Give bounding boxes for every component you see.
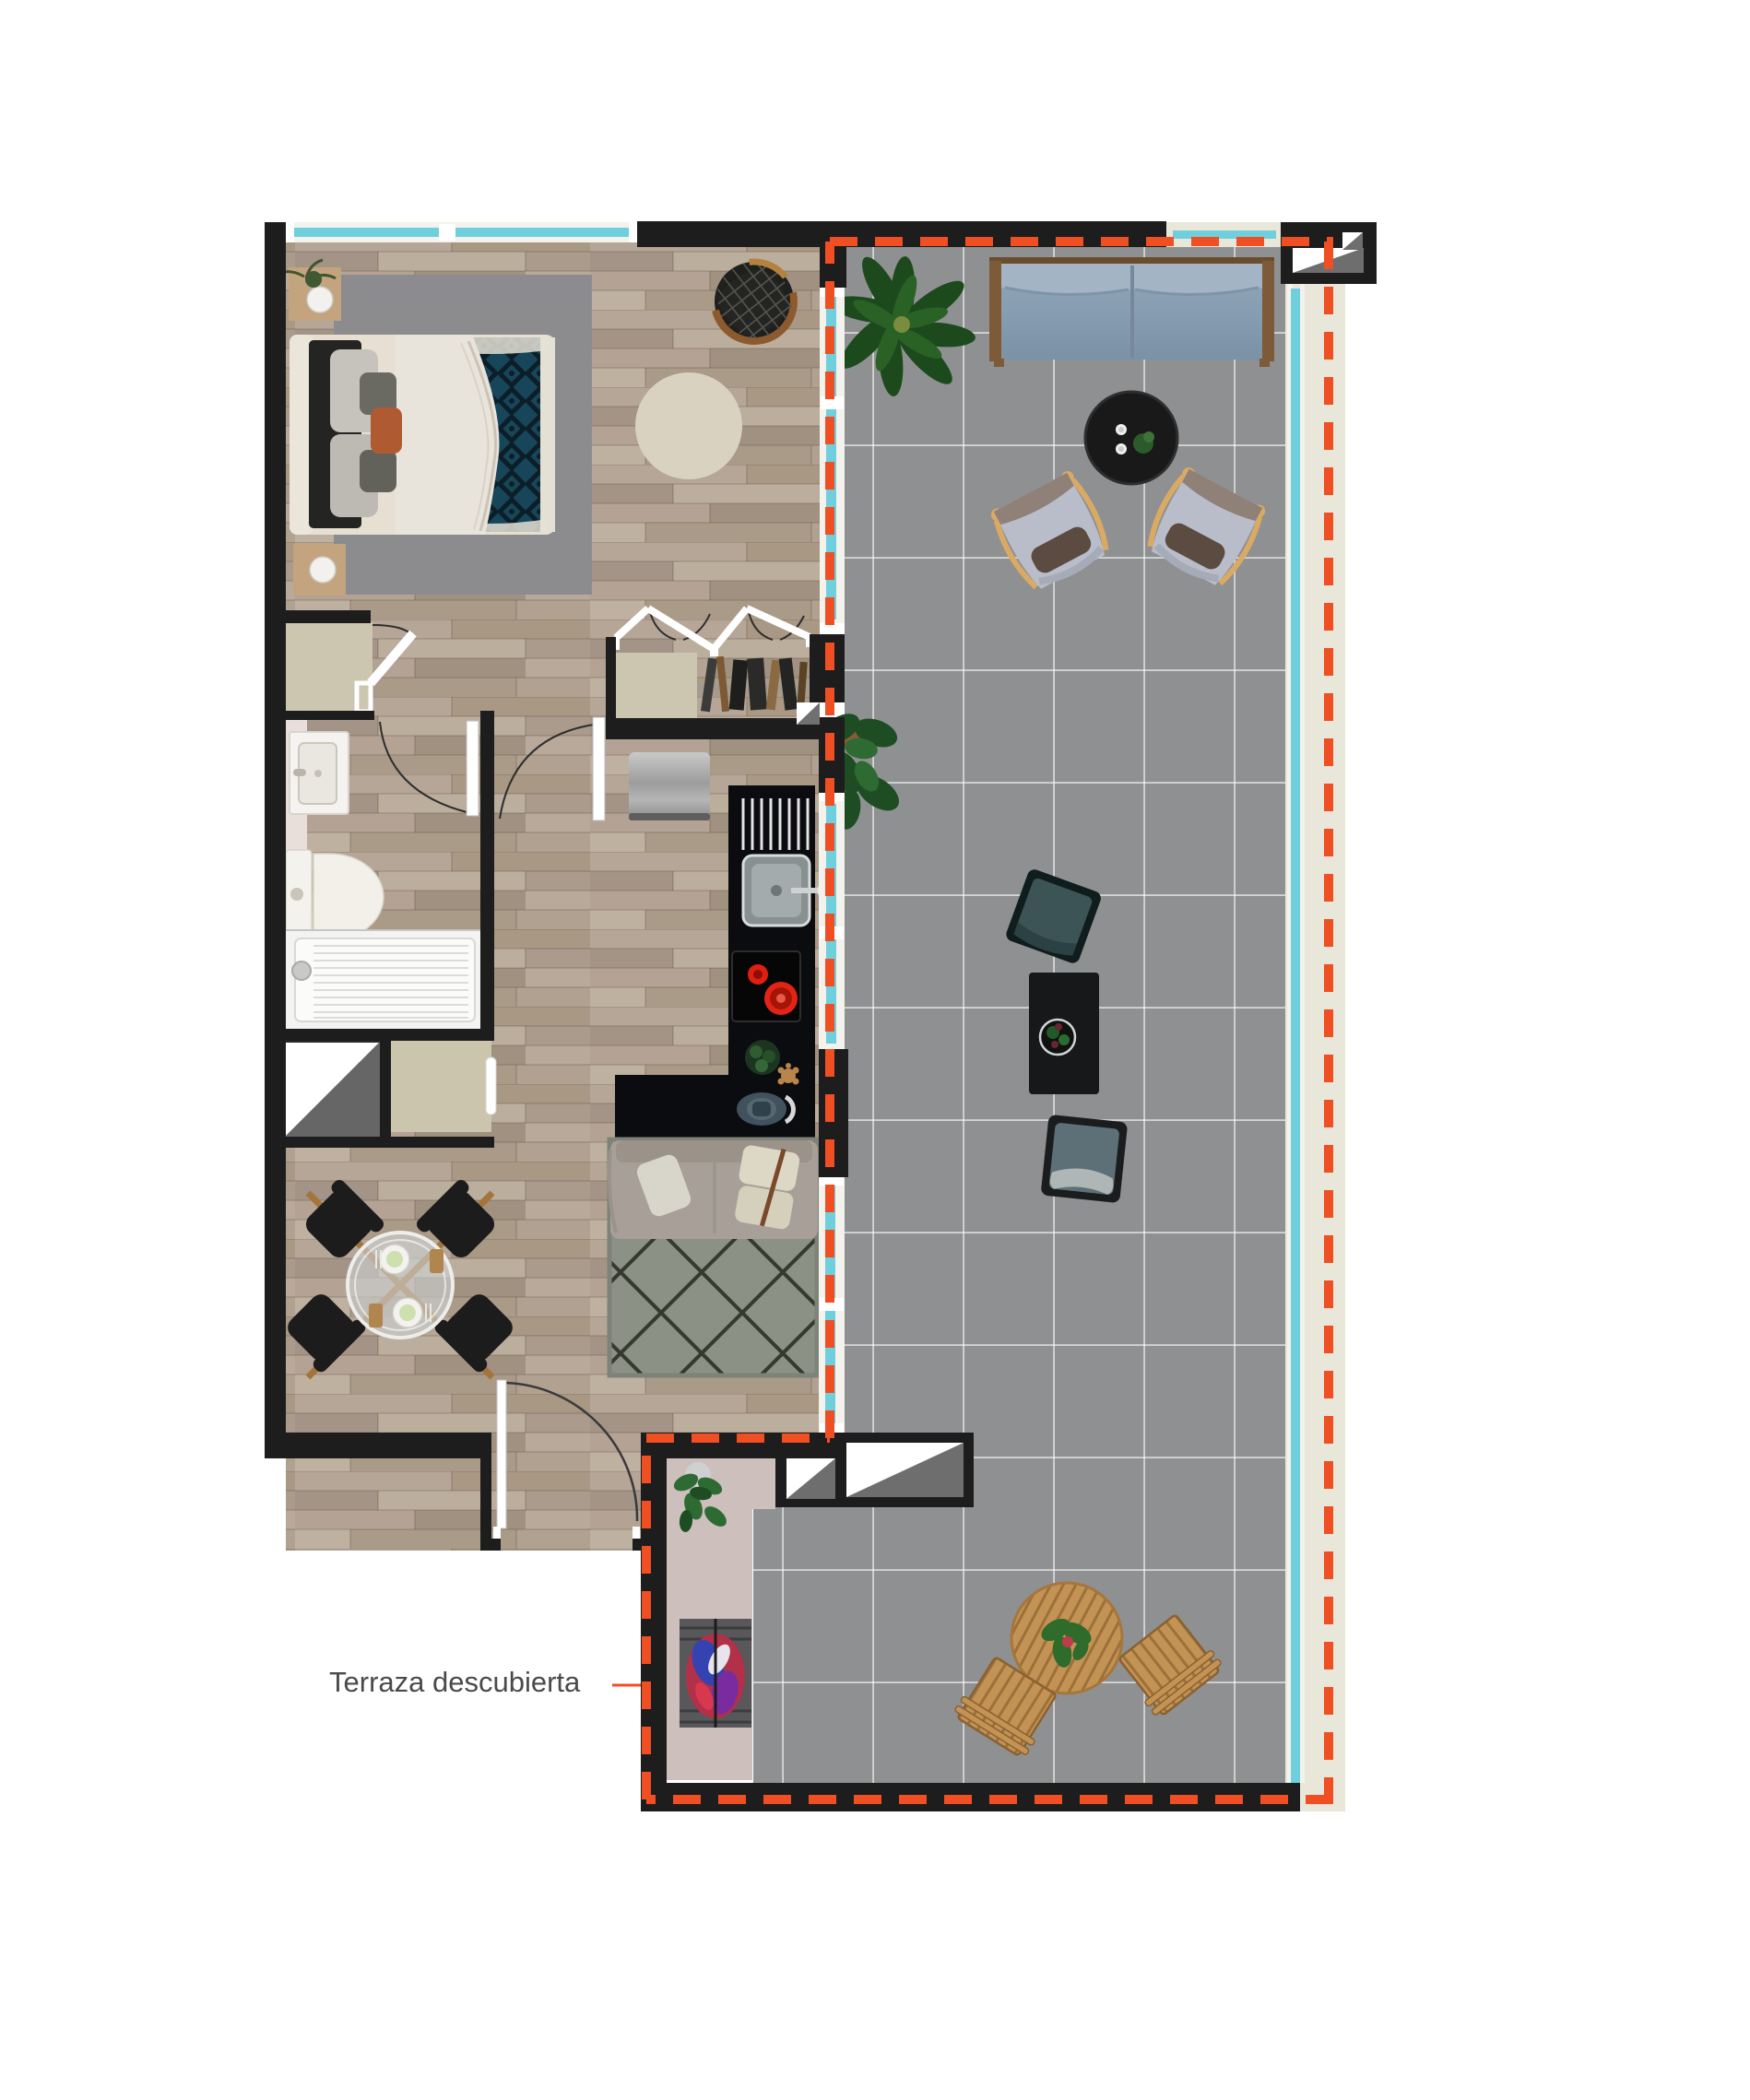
svg-text:Terraza descubierta: Terraza descubierta — [329, 1666, 581, 1698]
